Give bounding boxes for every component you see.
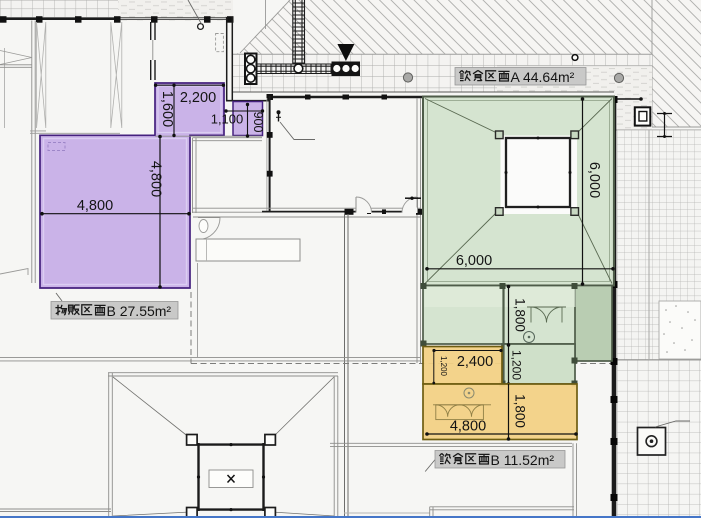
svg-text:1,200: 1,200 <box>510 350 524 380</box>
svg-text:4,800: 4,800 <box>148 161 164 197</box>
svg-text:B 27.55m²: B 27.55m² <box>107 303 172 319</box>
svg-text:1,200: 1,200 <box>439 356 448 377</box>
svg-text:6,000: 6,000 <box>586 162 602 198</box>
svg-text:4,800: 4,800 <box>77 198 113 214</box>
svg-text:A 44.64m²: A 44.64m² <box>511 69 575 85</box>
svg-text:900: 900 <box>251 112 265 133</box>
svg-text:1,800: 1,800 <box>513 298 528 332</box>
svg-text:4,800: 4,800 <box>450 419 486 435</box>
svg-text:6,000: 6,000 <box>456 253 492 269</box>
svg-text:1,100: 1,100 <box>211 112 244 127</box>
svg-text:1,600: 1,600 <box>159 91 175 127</box>
svg-text:1,800: 1,800 <box>513 394 528 428</box>
svg-text:2,200: 2,200 <box>180 90 216 106</box>
svg-text:B 11.52m²: B 11.52m² <box>491 452 555 468</box>
svg-text:2,400: 2,400 <box>457 354 493 370</box>
